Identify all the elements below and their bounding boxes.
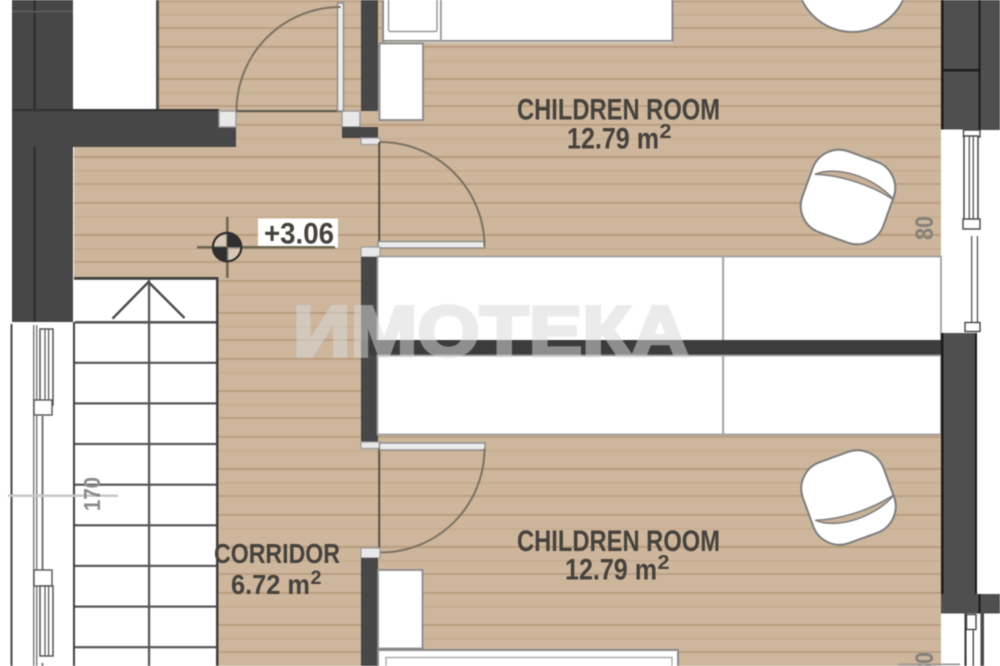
svg-text:170: 170	[79, 477, 105, 511]
svg-text:80: 80	[911, 216, 939, 240]
svg-text:6.72 m: 6.72 m	[231, 569, 310, 600]
svg-text:ИМОТЕКА: ИМОТЕКА	[293, 293, 689, 372]
svg-text:12.79 m: 12.79 m	[567, 122, 659, 155]
svg-text:12.79 m: 12.79 m	[565, 553, 657, 586]
svg-text:2: 2	[311, 568, 322, 589]
svg-text:+3.06: +3.06	[264, 218, 334, 251]
svg-text:80: 80	[911, 652, 939, 666]
svg-text:CORRIDOR: CORRIDOR	[214, 538, 340, 569]
svg-text:2: 2	[660, 121, 672, 143]
svg-text:2: 2	[658, 552, 670, 574]
